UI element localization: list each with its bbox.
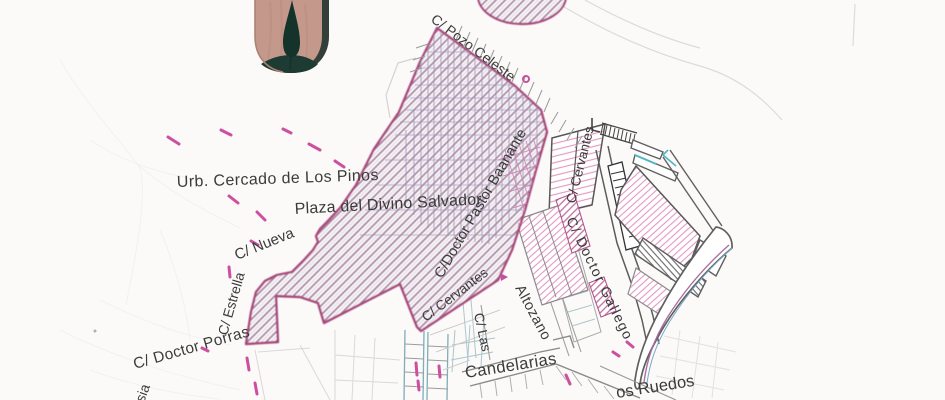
svg-text:C/ Doctor Porras: C/ Doctor Porras xyxy=(131,323,251,372)
svg-text:C/ Nueva: C/ Nueva xyxy=(232,224,297,263)
svg-text:Urb. Cercado de Los Pinos: Urb. Cercado de Los Pinos xyxy=(177,167,380,191)
svg-text:C/ Las: C/ Las xyxy=(471,312,494,354)
svg-text:os Ruedos: os Ruedos xyxy=(615,372,696,400)
